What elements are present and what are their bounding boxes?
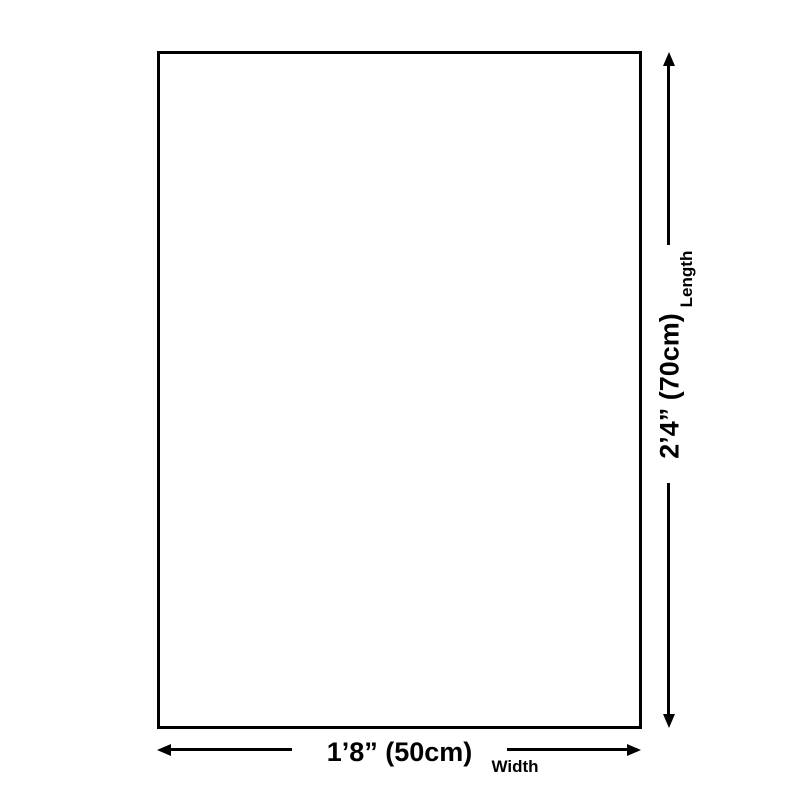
dimension-diagram: Length 2’4” (70cm) 1’8” (50cm) Width bbox=[0, 0, 800, 800]
width-dimension-value: 1’8” (50cm) bbox=[292, 737, 507, 767]
length-arrow-line-top bbox=[667, 64, 670, 245]
length-dimension-value: 2’4” (70cm) bbox=[655, 279, 685, 494]
arrow-down-icon bbox=[663, 714, 675, 728]
width-arrow-line-right bbox=[507, 748, 629, 751]
length-arrow-line-bottom bbox=[667, 483, 670, 716]
arrow-right-icon bbox=[627, 744, 641, 756]
width-arrow-line-left bbox=[169, 748, 292, 751]
product-outline-rectangle bbox=[157, 51, 642, 729]
width-axis-label: Width bbox=[487, 757, 543, 777]
